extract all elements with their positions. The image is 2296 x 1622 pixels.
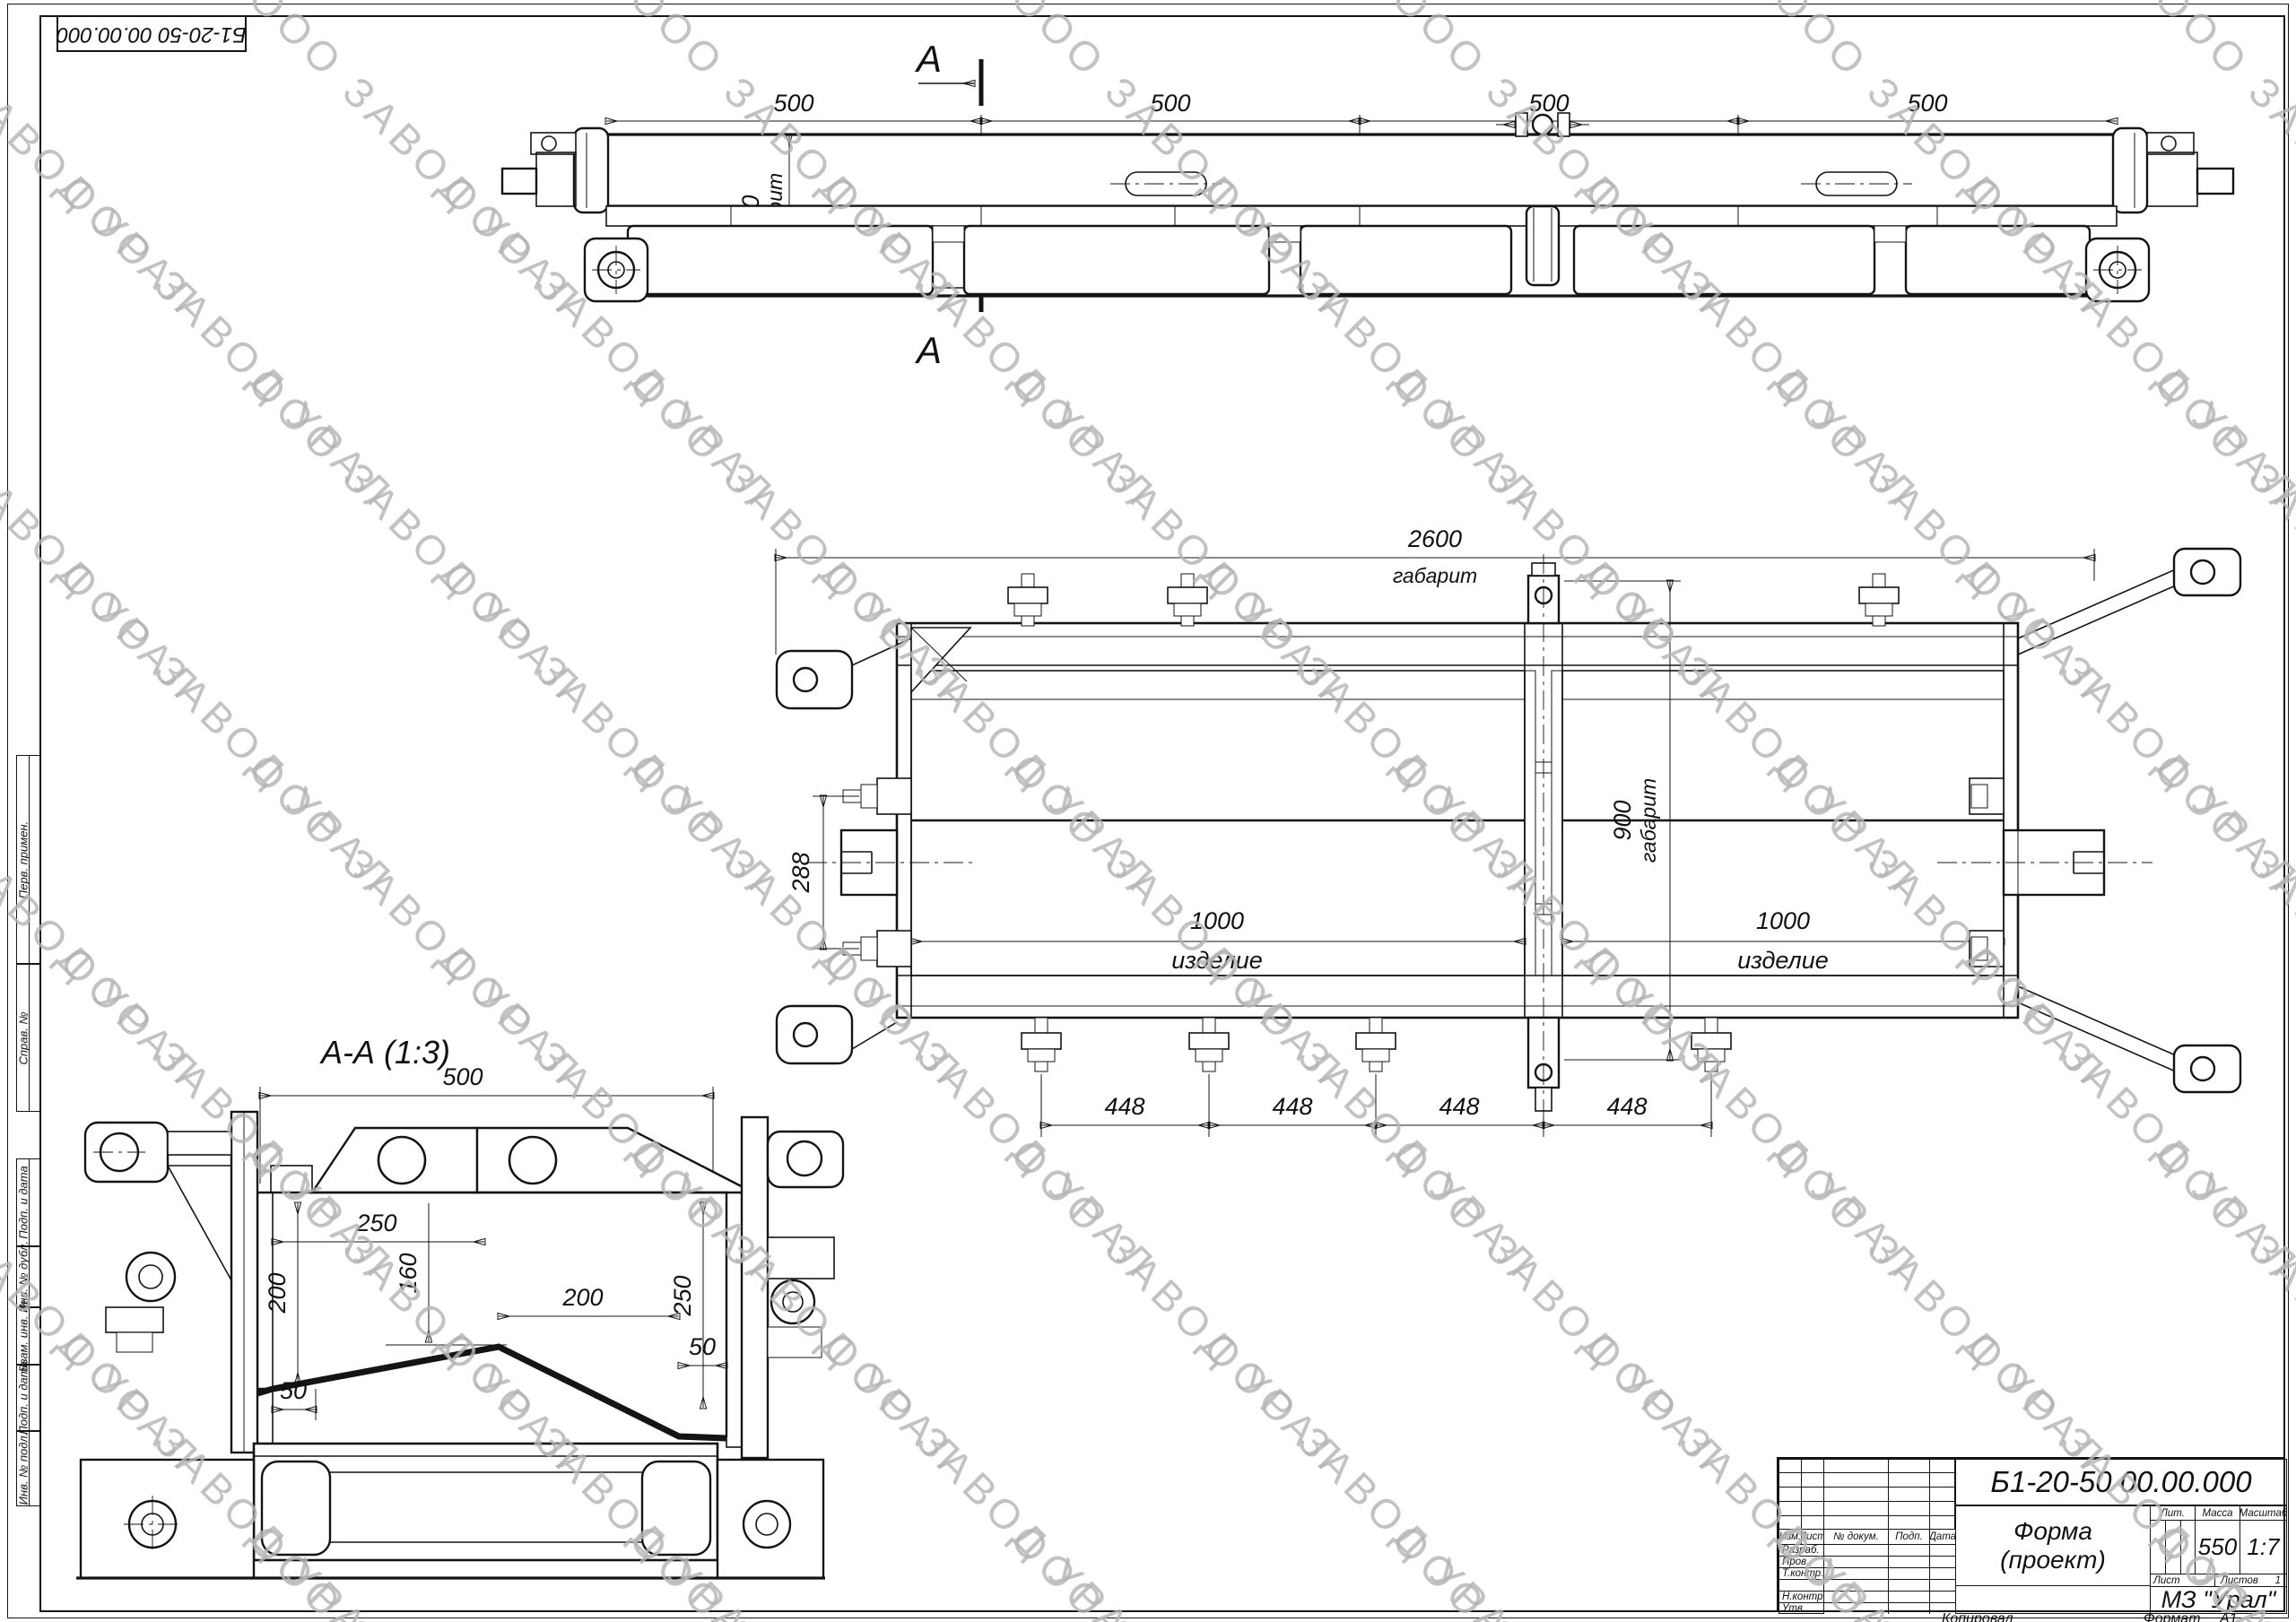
- side-field-inv-dubl: Инв. № дубл.: [16, 1246, 39, 1307]
- tb-col-docnum: № докум.: [1823, 1529, 1889, 1545]
- side-field-inv-podl: Инв. № подл.: [16, 1431, 39, 1506]
- tb-row-tkontr: Т.контр.: [1779, 1567, 1824, 1580]
- tb-sheet-label: Лист: [2150, 1574, 2215, 1587]
- tb-part-name: Форма (проект): [1955, 1505, 2151, 1586]
- drawing-frame: [39, 15, 2285, 1612]
- tb-row-prov: Пров.: [1779, 1556, 1824, 1568]
- side-label: Подп. и дата: [16, 1166, 30, 1238]
- tb-sheets-label: Листов: [2221, 1575, 2258, 1586]
- side-label: Подп. и дата: [16, 1361, 30, 1434]
- side-field-vzam-inv: Взам. инв. №: [16, 1307, 39, 1365]
- side-label: Справ. №: [16, 1011, 30, 1064]
- tb-mass-label: Масса: [2195, 1505, 2240, 1521]
- copied-note: Копировал: [1942, 1611, 2013, 1622]
- title-block: Изм. Лист № докум. Подп. Дата Разраб. Пр…: [1777, 1457, 2285, 1612]
- tb-col-podp: Подп.: [1888, 1529, 1930, 1545]
- corner-doc-number: Б1-20-50 00.00.000: [57, 22, 247, 47]
- tb-lit-label: Лит.: [2150, 1505, 2196, 1521]
- tb-sheets-cell: Листов 1: [2214, 1574, 2287, 1587]
- side-field-podp-data-2: Подп. и дата: [16, 1365, 39, 1431]
- tb-scale-label: Масштаб: [2239, 1505, 2287, 1521]
- tb-col-izm: Изм.: [1779, 1529, 1802, 1545]
- tb-scale-value: 1:7: [2239, 1520, 2287, 1574]
- side-field-sprav-no: Справ. №: [16, 964, 39, 1112]
- tb-row-utv: Утв.: [1779, 1602, 1824, 1614]
- side-field-podp-data-1: Подп. и дата: [16, 1158, 39, 1246]
- side-label: Перв. примен.: [16, 820, 30, 898]
- tb-sheets-value: 1: [2275, 1575, 2281, 1586]
- side-label: Инв. № подл.: [16, 1433, 30, 1505]
- tb-mass-value: 550: [2195, 1520, 2240, 1574]
- tb-col-list: Лист: [1801, 1529, 1824, 1545]
- tb-company: МЗ "Урал": [2150, 1586, 2287, 1614]
- corner-stamp: Б1-20-50 00.00.000: [57, 15, 247, 52]
- format-label: Формат: [2144, 1611, 2201, 1622]
- tb-row-razrab: Разраб.: [1779, 1544, 1824, 1557]
- side-field-perv-primen: Перв. примен.: [16, 755, 39, 964]
- drawing-sheet: A A 500 500 500 500 500 габарит: [0, 0, 2296, 1622]
- tb-row-nkontr: Н.контр.: [1779, 1591, 1824, 1603]
- tb-col-data: Дата: [1929, 1529, 1956, 1545]
- tb-doc-number: Б1-20-50 00.00.000: [1955, 1459, 2287, 1505]
- tb-name-line2: (проект): [2000, 1546, 2106, 1574]
- format-value: А1: [2220, 1611, 2238, 1622]
- tb-name-line1: Форма: [2013, 1517, 2092, 1546]
